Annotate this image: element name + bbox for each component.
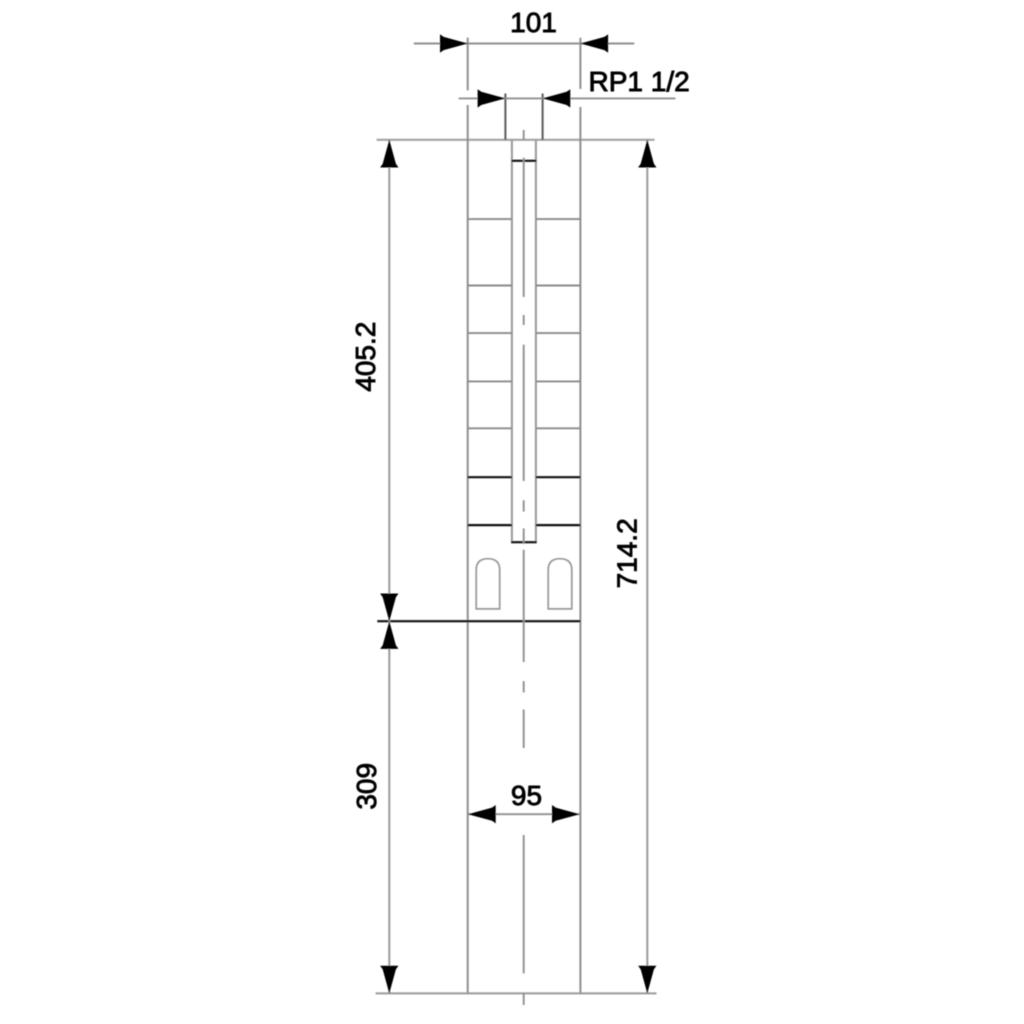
- svg-text:101: 101: [510, 7, 557, 38]
- svg-text:405.2: 405.2: [350, 322, 381, 392]
- svg-text:714.2: 714.2: [612, 518, 643, 588]
- svg-text:RP1 1/2: RP1 1/2: [589, 66, 690, 97]
- svg-text:95: 95: [511, 780, 542, 811]
- svg-text:309: 309: [351, 763, 382, 810]
